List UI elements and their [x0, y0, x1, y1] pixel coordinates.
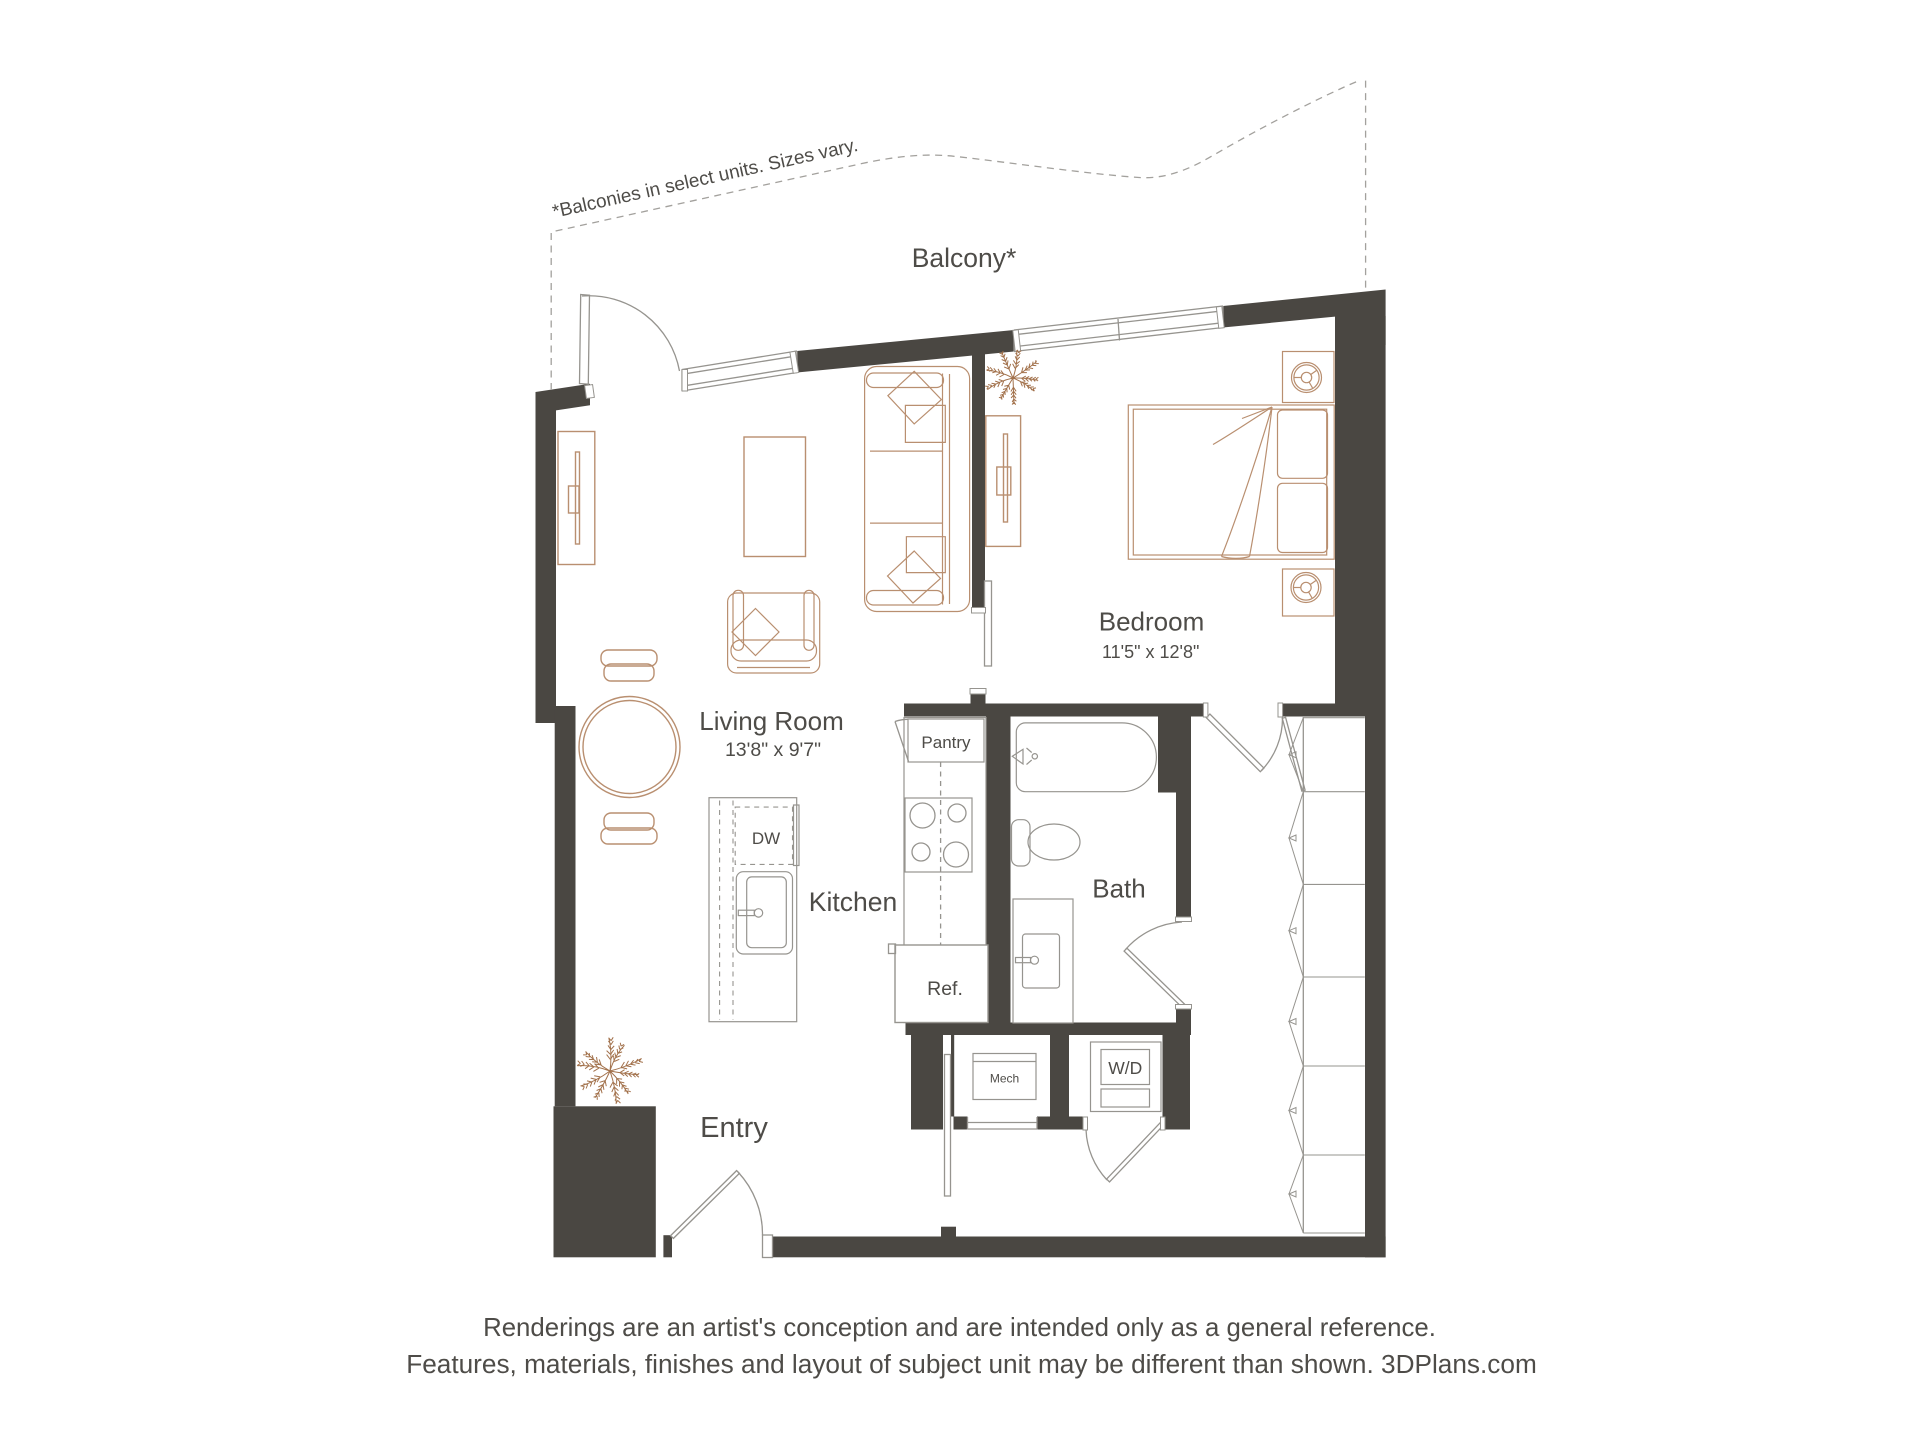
svg-text:W/D: W/D — [1108, 1058, 1142, 1078]
svg-text:Mech: Mech — [990, 1072, 1019, 1086]
svg-text:Bath: Bath — [1092, 874, 1146, 904]
svg-text:*Balconies in select units. Si: *Balconies in select units. Sizes vary. — [551, 135, 860, 223]
svg-text:Features, materials, finishes: Features, materials, finishes and layout… — [406, 1349, 1537, 1379]
svg-text:Entry: Entry — [700, 1112, 768, 1144]
svg-text:DW: DW — [752, 829, 780, 848]
svg-text:13'8" x 9'7": 13'8" x 9'7" — [725, 739, 821, 761]
svg-text:Kitchen: Kitchen — [809, 887, 897, 917]
svg-text:Balcony*: Balcony* — [912, 243, 1017, 273]
svg-text:Ref.: Ref. — [927, 978, 963, 1000]
svg-text:Bedroom: Bedroom — [1099, 607, 1205, 637]
svg-text:11'5" x 12'8": 11'5" x 12'8" — [1102, 642, 1199, 662]
svg-text:Pantry: Pantry — [921, 733, 971, 752]
svg-text:Renderings are an artist's con: Renderings are an artist's conception an… — [483, 1314, 1436, 1342]
svg-text:Living Room: Living Room — [699, 706, 844, 736]
